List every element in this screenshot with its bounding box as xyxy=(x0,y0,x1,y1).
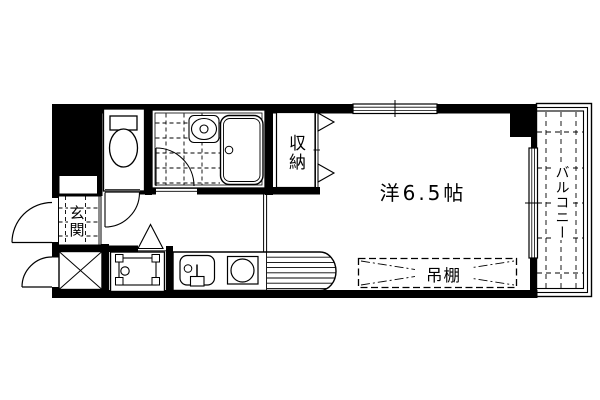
stove-burner-icon xyxy=(228,257,259,285)
entrance: 玄関 xyxy=(12,196,101,245)
kitchen xyxy=(173,194,336,291)
room-divider-opening xyxy=(264,194,267,253)
shoe-cabinet xyxy=(60,176,98,194)
hanging-shelf: 吊棚 xyxy=(359,259,517,288)
closet-door-triangle-bottom xyxy=(318,164,334,182)
bathtub-icon xyxy=(221,116,264,185)
balcony-window xyxy=(525,148,542,258)
washer-folding-door-triangle xyxy=(138,225,163,249)
toilet-door-arc xyxy=(105,193,140,228)
wall-washer-top xyxy=(109,246,138,253)
pillar-top-right xyxy=(510,104,537,137)
shaft-door-arc xyxy=(22,257,52,287)
main-room-label: 洋6.5帖 xyxy=(380,181,467,205)
closet: 収納 xyxy=(277,113,335,188)
entrance-label: 玄関 xyxy=(68,205,86,239)
wall-window-bottom-strip xyxy=(530,258,537,293)
closet-door-triangle-top xyxy=(318,113,334,131)
toilet-room xyxy=(104,109,145,227)
shaft-box xyxy=(59,252,102,290)
washbasin-icon xyxy=(189,116,219,143)
wall-window-top-strip xyxy=(531,137,537,148)
washing-machine-icon xyxy=(111,252,165,292)
floor-plan: バルコニー xyxy=(0,0,600,400)
hanging-shelf-label: 吊棚 xyxy=(426,266,461,285)
kitchen-sink-icon xyxy=(180,256,215,287)
front-door-arc xyxy=(12,203,52,243)
wall-shaft-right xyxy=(102,244,109,298)
toilet-icon xyxy=(110,116,138,167)
balcony: バルコニー xyxy=(533,104,592,297)
top-window xyxy=(353,100,437,117)
bathroom xyxy=(152,110,265,191)
wall-washer-right xyxy=(166,246,173,292)
balcony-label: バルコニー xyxy=(554,165,570,240)
wall-bath-closet xyxy=(265,104,273,195)
wall-toilet-bath xyxy=(145,104,152,195)
bath-door-threshold xyxy=(156,188,197,191)
closet-label: 収納 xyxy=(285,134,306,172)
floor-plan-drawing: バルコニー xyxy=(0,0,600,400)
